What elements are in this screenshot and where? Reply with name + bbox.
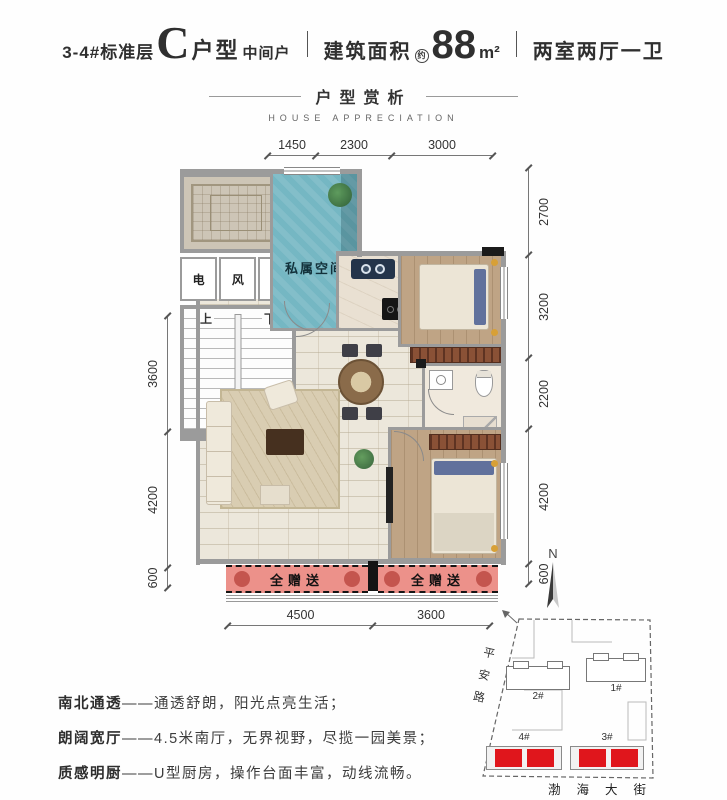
side-table-icon xyxy=(260,485,290,505)
sofa-icon xyxy=(206,401,232,505)
plant-icon xyxy=(328,183,352,207)
wall-pier xyxy=(368,561,378,591)
gift-label: 全赠送 xyxy=(270,570,324,589)
dimension-line-top: 1450 2300 3000 xyxy=(268,128,492,156)
dim-right-1: 2700 xyxy=(528,168,558,255)
floor-plan: 电 风 水暖 上 下 私属空间 xyxy=(172,163,517,603)
dining-table-icon xyxy=(338,359,384,405)
header-area-value: 88 xyxy=(432,27,477,63)
header-divider-2 xyxy=(516,31,517,57)
building-3-highlighted: 3# xyxy=(570,746,644,770)
feature-list: 南北通透——通透舒朗，阳光点亮生活； 朗阔宽厅——4.5米南厅，无界视野，尽揽一… xyxy=(58,692,468,797)
title-rule-left xyxy=(209,96,301,97)
wardrobe-icon xyxy=(429,434,501,450)
approx-circle-icon: 约 xyxy=(415,49,429,63)
window-bedroom-south xyxy=(500,463,508,539)
header-building-floor: 3-4#标准层 xyxy=(62,38,154,63)
building-label: 2# xyxy=(507,691,569,702)
header-unit-word: 户型 xyxy=(191,33,239,65)
site-map: 2# 1# 4# 3# 平安路 渤海大街 xyxy=(472,610,724,798)
window-north xyxy=(284,167,340,175)
plant-icon xyxy=(354,449,374,469)
section-title: 户型赏析 xyxy=(315,84,411,108)
elevator-car xyxy=(210,195,262,231)
bedroom-north xyxy=(398,253,504,347)
wall-kitchen-top xyxy=(336,251,506,256)
dim-left-3: 600 xyxy=(138,568,168,587)
building-label: 4# xyxy=(487,732,561,743)
stairs-up-label: 上 xyxy=(198,310,214,327)
dimension-line-left: 3600 4200 600 xyxy=(138,316,168,587)
wall-private-right xyxy=(357,169,362,257)
lamp-icon xyxy=(491,460,498,467)
bed-icon xyxy=(419,264,489,330)
header-area-label: 建筑面积 xyxy=(324,35,412,64)
tv-console-icon xyxy=(386,467,393,523)
floorplan-poster: 3-4#标准层 C 户型 中间户 建筑面积 约 88 m² 两室两厅一卫 户型赏… xyxy=(0,0,727,800)
compass-north: N xyxy=(542,546,564,615)
compass-label: N xyxy=(542,546,564,561)
coffee-table-icon xyxy=(266,429,304,455)
pillow-icon xyxy=(434,461,494,475)
title-rule-right xyxy=(426,96,518,97)
lamp-icon xyxy=(491,545,498,552)
dim-top-1: 1450 xyxy=(268,128,316,156)
chair-icon xyxy=(342,344,358,357)
feature-item: 南北通透——通透舒朗，阳光点亮生活； xyxy=(58,692,468,713)
header: 3-4#标准层 C 户型 中间户 建筑面积 约 88 m² 两室两厅一卫 xyxy=(0,22,727,65)
dim-right-3: 2200 xyxy=(528,358,558,429)
compass-arrow-icon xyxy=(544,562,562,610)
shaft-electric: 电 xyxy=(180,257,217,301)
blanket-icon xyxy=(434,513,494,551)
bed-icon xyxy=(431,458,497,554)
gift-label: 全赠送 xyxy=(411,570,465,589)
section-subtitle: HOUSE APPRECIATION xyxy=(0,113,727,123)
pillow-icon xyxy=(474,269,486,325)
building-2: 2# xyxy=(506,666,570,690)
dim-top-3: 3000 xyxy=(392,128,492,156)
building-1: 1# xyxy=(586,658,646,682)
shaft-vent: 风 xyxy=(219,257,256,301)
header-area-unit: m² xyxy=(479,43,500,63)
header-rooms: 两室两厅一卫 xyxy=(533,35,665,64)
dim-right-2: 3200 xyxy=(528,255,558,358)
chair-icon xyxy=(366,344,382,357)
section-title-block: 户型赏析 HOUSE APPRECIATION xyxy=(0,84,727,123)
lamp-icon xyxy=(491,329,498,336)
toilet-icon xyxy=(475,370,493,397)
wall-pier xyxy=(482,247,504,256)
dim-top-2: 2300 xyxy=(316,128,392,156)
header-divider-1 xyxy=(307,31,308,57)
chair-icon xyxy=(342,407,358,420)
gift-balcony-right: 全赠送 xyxy=(378,565,498,593)
wall-west xyxy=(196,299,200,565)
balcony-railing xyxy=(226,595,498,602)
building-label: 3# xyxy=(571,732,643,743)
dim-left-2: 4200 xyxy=(138,432,168,568)
header-unit-letter: C xyxy=(156,22,189,63)
road-label-bottom: 渤海大街 xyxy=(486,779,724,798)
feature-item: 质感明厨——U型厨房，操作台面丰富，动线流畅。 xyxy=(58,762,468,783)
gift-balcony-left: 全赠送 xyxy=(226,565,368,593)
dim-left-1: 3600 xyxy=(138,316,168,432)
lamp-icon xyxy=(491,259,498,266)
dim-right-4: 4200 xyxy=(528,429,558,564)
wall-south xyxy=(196,559,506,564)
building-4-highlighted: 4# xyxy=(486,746,562,770)
feature-item: 朗阔宽厅——4.5米南厅，无界视野，尽揽一园美景； xyxy=(58,727,468,748)
chair-icon xyxy=(366,407,382,420)
kitchen-sink-icon xyxy=(351,259,395,279)
washbasin-icon xyxy=(429,370,453,390)
dimension-line-right: 2700 3200 2200 4200 600 xyxy=(528,168,558,583)
header-position: 中间户 xyxy=(242,42,290,63)
building-label: 1# xyxy=(587,683,645,694)
window-bedroom-north xyxy=(500,267,508,319)
wall-pier xyxy=(416,359,426,368)
